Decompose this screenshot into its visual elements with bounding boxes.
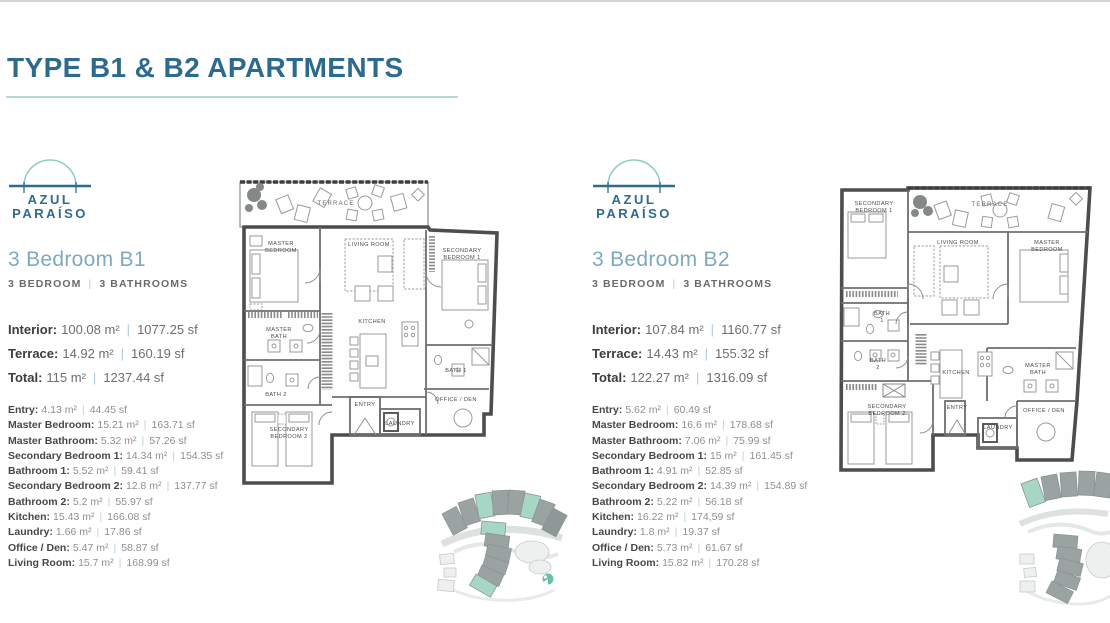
separator: | bbox=[751, 480, 764, 492]
summary-label: Interior: bbox=[592, 322, 641, 337]
plan-label-master-bedroom-2: BEDROOM bbox=[1031, 247, 1063, 253]
summary-row: Total:115 m²|1237.44 sf bbox=[8, 370, 198, 385]
room-detail-list: Entry:5.62 m²|60.49 sf Master Bedroom:16… bbox=[592, 403, 807, 571]
page-title: TYPE B1 & B2 APARTMENTS bbox=[7, 52, 404, 84]
plan-label-entry: ENTRY bbox=[355, 402, 376, 408]
room-label: Entry: bbox=[8, 404, 38, 416]
room-detail-row: Master Bedroom:15.21 m²|163.71 sf bbox=[8, 418, 223, 433]
room-label: Bathroom 2: bbox=[8, 496, 70, 508]
building-stack bbox=[1046, 534, 1083, 603]
separator: | bbox=[114, 557, 127, 569]
room-sf: 170.28 sf bbox=[716, 557, 759, 569]
room-m2: 15.7 m² bbox=[78, 557, 114, 569]
room-label: Bathroom 1: bbox=[8, 465, 70, 477]
page-top-border bbox=[0, 0, 1110, 2]
bedrooms-label: 3 BEDROOM bbox=[592, 278, 666, 290]
room-m2: 15 m² bbox=[710, 450, 737, 462]
room-label: Office / Den: bbox=[592, 542, 654, 554]
plan-label-bath2: BATH 2 bbox=[265, 392, 287, 398]
room-detail-row: Master Bedroom:16.6 m²|178.68 sf bbox=[592, 418, 807, 433]
room-sf: 163.71 sf bbox=[152, 419, 195, 431]
sunrise-arc-icon bbox=[9, 160, 91, 193]
unit-subtitle: 3 BEDROOM|3 BATHROOMS bbox=[8, 278, 188, 290]
room-detail-row: Entry:5.62 m²|60.49 sf bbox=[592, 403, 807, 418]
plan-label-master-bath-2: BATH bbox=[1030, 370, 1046, 376]
plan-label-secondary-bedroom1-1: SECONDARY bbox=[855, 201, 894, 207]
room-m2: 14.39 m² bbox=[710, 480, 751, 492]
plan-label-kitchen: KITCHEN bbox=[942, 370, 969, 376]
separator: | bbox=[720, 435, 733, 447]
site-location-map bbox=[436, 466, 568, 606]
summary-label: Total: bbox=[592, 370, 626, 385]
room-label: Master Bathroom: bbox=[592, 435, 682, 447]
plan-label-entry: ENTRY bbox=[947, 405, 968, 411]
room-m2: 5.47 m² bbox=[73, 542, 109, 554]
separator: | bbox=[77, 404, 90, 416]
room-label: Office / Den: bbox=[8, 542, 70, 554]
title-underline bbox=[6, 96, 458, 98]
summary-row: Interior:100.08 m²|1077.25 sf bbox=[8, 322, 198, 337]
room-sf: 17.86 sf bbox=[104, 526, 141, 538]
room-m2: 14.34 m² bbox=[126, 450, 167, 462]
room-sf: 57.26 sf bbox=[149, 435, 186, 447]
site-location-map bbox=[1018, 468, 1110, 620]
separator: | bbox=[86, 370, 103, 385]
room-detail-row: Master Bathroom:5.32 m²|57.26 sf bbox=[8, 434, 223, 449]
room-m2: 4.91 m² bbox=[657, 465, 693, 477]
plan-label-kitchen: KITCHEN bbox=[358, 319, 385, 325]
room-label: Laundry: bbox=[8, 526, 53, 538]
brand-logo: AZUL PARAÍSO bbox=[8, 150, 92, 220]
room-label: Secondary Bedroom 1: bbox=[592, 450, 707, 462]
room-label: Bathroom 2: bbox=[592, 496, 654, 508]
room-m2: 5.73 m² bbox=[657, 542, 693, 554]
plan-label-bath2-1: BATH bbox=[870, 358, 886, 364]
room-detail-row: Laundry:1.8 m²|19.37 sf bbox=[592, 525, 807, 540]
separator: | bbox=[92, 526, 105, 538]
room-sf: 75.99 sf bbox=[733, 435, 770, 447]
brand-name-line2: PARAÍSO bbox=[12, 206, 88, 220]
plan-label-master-bath-2: BATH bbox=[271, 334, 287, 340]
room-detail-row: Living Room:15.82 m²|170.28 sf bbox=[592, 556, 807, 571]
room-sf: 61.67 sf bbox=[705, 542, 742, 554]
room-detail-row: Secondary Bedroom 2:12.8 m²|137.77 sf bbox=[8, 479, 223, 494]
separator: | bbox=[717, 419, 730, 431]
room-detail-row: Living Room:15.7 m²|168.99 sf bbox=[8, 556, 223, 571]
summary-label: Terrace: bbox=[8, 346, 58, 361]
room-detail-row: Office / Den:5.73 m²|61.67 sf bbox=[592, 541, 807, 556]
summary-m2: 107.84 m² bbox=[645, 322, 704, 337]
summary-sf: 160.19 sf bbox=[131, 346, 185, 361]
room-m2: 16.6 m² bbox=[681, 419, 717, 431]
plan-label-secondary-bedroom1-2: BEDROOM 1 bbox=[443, 255, 480, 261]
separator: | bbox=[94, 511, 107, 523]
separator: | bbox=[704, 322, 721, 337]
separator: | bbox=[692, 465, 705, 477]
room-sf: 154.35 sf bbox=[180, 450, 223, 462]
room-sf: 137.77 sf bbox=[174, 480, 217, 492]
room-label: Master Bathroom: bbox=[8, 435, 98, 447]
brand-name-line1: AZUL bbox=[612, 192, 657, 207]
separator: | bbox=[108, 542, 121, 554]
summary-m2: 14.92 m² bbox=[62, 346, 113, 361]
summary-m2: 115 m² bbox=[46, 370, 86, 385]
unit-subtitle: 3 BEDROOM|3 BATHROOMS bbox=[592, 278, 772, 290]
separator: | bbox=[698, 346, 715, 361]
room-label: Kitchen: bbox=[8, 511, 50, 523]
plan-label-master-bedroom-2: BEDROOM bbox=[265, 248, 297, 254]
plan-label-bath2-2: 2 bbox=[876, 365, 880, 371]
separator: | bbox=[689, 370, 706, 385]
summary-m2: 122.27 m² bbox=[630, 370, 689, 385]
room-detail-row: Laundry:1.66 m²|17.86 sf bbox=[8, 525, 223, 540]
separator: | bbox=[670, 526, 683, 538]
bathrooms-label: 3 BATHROOMS bbox=[683, 278, 772, 290]
room-sf: 59.41 sf bbox=[121, 465, 158, 477]
plan-label-secondary-bedroom2-1: SECONDARY bbox=[270, 427, 309, 433]
separator: | bbox=[692, 542, 705, 554]
room-label: Living Room: bbox=[592, 557, 659, 569]
room-detail-row: Kitchen:15.43 m²|166.08 sf bbox=[8, 510, 223, 525]
separator: | bbox=[108, 465, 121, 477]
bathrooms-label: 3 BATHROOMS bbox=[99, 278, 188, 290]
plan-label-bath1-1: BATH bbox=[874, 311, 890, 317]
terrace-room: TERRACE bbox=[240, 182, 428, 227]
summary-m2: 14.43 m² bbox=[646, 346, 697, 361]
room-sf: 55.97 sf bbox=[115, 496, 152, 508]
room-m2: 5.62 m² bbox=[625, 404, 661, 416]
sunrise-arc-icon bbox=[593, 160, 675, 193]
plan-label-master-bedroom-1: MASTER bbox=[1034, 240, 1060, 246]
summary-sf: 1077.25 sf bbox=[137, 322, 198, 337]
room-m2: 4.13 m² bbox=[41, 404, 77, 416]
room-sf: 166.08 sf bbox=[107, 511, 150, 523]
separator: | bbox=[120, 322, 137, 337]
separator: | bbox=[167, 450, 180, 462]
room-m2: 5.22 m² bbox=[657, 496, 693, 508]
summary-list: Interior:107.84 m²|1160.77 sf Terrace:14… bbox=[592, 322, 781, 394]
plan-label-terrace: TERRACE bbox=[971, 202, 1008, 208]
room-sf: 52.85 sf bbox=[705, 465, 742, 477]
room-detail-row: Office / Den:5.47 m²|58.87 sf bbox=[8, 541, 223, 556]
separator: | bbox=[139, 419, 152, 431]
summary-label: Terrace: bbox=[592, 346, 642, 361]
summary-list: Interior:100.08 m²|1077.25 sf Terrace:14… bbox=[8, 322, 198, 394]
brand-logo: AZUL PARAÍSO bbox=[592, 150, 676, 220]
plan-label-bath1-2: 1 bbox=[880, 318, 884, 324]
plan-label-terrace: TERRACE bbox=[317, 201, 354, 207]
separator: | bbox=[103, 496, 116, 508]
plan-label-secondary-bedroom2-2: BEDROOM 2 bbox=[270, 434, 307, 440]
room-sf: 154.89 sf bbox=[764, 480, 807, 492]
room-m2: 7.06 m² bbox=[685, 435, 721, 447]
plan-label-secondary-bedroom2-1: SECONDARY bbox=[868, 404, 907, 410]
room-sf: 161.45 sf bbox=[750, 450, 793, 462]
room-m2: 1.8 m² bbox=[640, 526, 670, 538]
room-sf: 44.45 sf bbox=[90, 404, 127, 416]
summary-label: Interior: bbox=[8, 322, 57, 337]
room-detail-row: Bathroom 1:5.52 m²|59.41 sf bbox=[8, 464, 223, 479]
room-detail-row: Bathroom 1:4.91 m²|52.85 sf bbox=[592, 464, 807, 479]
room-detail-row: Secondary Bedroom 1:15 m²|161.45 sf bbox=[592, 449, 807, 464]
summary-row: Terrace:14.43 m²|155.32 sf bbox=[592, 346, 781, 361]
room-m2: 5.52 m² bbox=[73, 465, 109, 477]
summary-sf: 1237.44 sf bbox=[103, 370, 164, 385]
plan-label-master-bath-1: MASTER bbox=[1025, 363, 1051, 369]
plan-label-office-den: OFFICE / DEN bbox=[435, 397, 477, 403]
summary-sf: 155.32 sf bbox=[715, 346, 769, 361]
compass-dot-icon bbox=[543, 574, 554, 585]
room-sf: 19.37 sf bbox=[682, 526, 719, 538]
separator: | bbox=[704, 557, 717, 569]
room-label: Kitchen: bbox=[592, 511, 634, 523]
separator: | bbox=[678, 511, 691, 523]
room-label: Entry: bbox=[592, 404, 622, 416]
separator: | bbox=[136, 435, 149, 447]
room-m2: 15.21 m² bbox=[97, 419, 138, 431]
room-label: Living Room: bbox=[8, 557, 75, 569]
unit-heading: 3 Bedroom B2 bbox=[592, 248, 730, 272]
separator: | bbox=[162, 480, 175, 492]
summary-row: Interior:107.84 m²|1160.77 sf bbox=[592, 322, 781, 337]
separator: | bbox=[661, 404, 674, 416]
plan-label-master-bath-1: MASTER bbox=[266, 327, 292, 333]
room-label: Secondary Bedroom 1: bbox=[8, 450, 123, 462]
plan-label-laundry: LAUNDRY bbox=[983, 425, 1012, 431]
room-m2: 12.8 m² bbox=[126, 480, 162, 492]
floor-plan-b1: TERRACE bbox=[232, 172, 544, 512]
room-detail-row: Entry:4.13 m²|44.45 sf bbox=[8, 403, 223, 418]
room-m2: 16.22 m² bbox=[637, 511, 678, 523]
building-arc bbox=[1021, 471, 1110, 507]
summary-row: Terrace:14.92 m²|160.19 sf bbox=[8, 346, 198, 361]
room-sf: 56.18 sf bbox=[705, 496, 742, 508]
room-sf: 168.99 sf bbox=[126, 557, 169, 569]
room-detail-list: Entry:4.13 m²|44.45 sf Master Bedroom:15… bbox=[8, 403, 223, 571]
room-sf: 58.87 sf bbox=[121, 542, 158, 554]
plan-label-master-bedroom-1: MASTER bbox=[268, 241, 294, 247]
plan-label-living-room: LIVING ROOM bbox=[937, 240, 979, 246]
room-label: Laundry: bbox=[592, 526, 637, 538]
summary-sf: 1316.09 sf bbox=[706, 370, 767, 385]
room-detail-row: Bathroom 2:5.22 m²|56.18 sf bbox=[592, 495, 807, 510]
separator: | bbox=[114, 346, 131, 361]
room-m2: 5.32 m² bbox=[101, 435, 137, 447]
room-detail-row: Kitchen:16.22 m²|174,59 sf bbox=[592, 510, 807, 525]
room-detail-row: Master Bathroom:7.06 m²|75.99 sf bbox=[592, 434, 807, 449]
room-detail-row: Secondary Bedroom 2:14.39 m²|154.89 sf bbox=[592, 479, 807, 494]
room-m2: 5.2 m² bbox=[73, 496, 103, 508]
plan-label-laundry: LAUNDRY bbox=[385, 421, 414, 427]
room-label: Master Bedroom: bbox=[592, 419, 678, 431]
brand-name-line1: AZUL bbox=[28, 192, 73, 207]
separator: | bbox=[82, 278, 100, 290]
separator: | bbox=[666, 278, 684, 290]
plan-label-secondary-bedroom1-1: SECONDARY bbox=[443, 248, 482, 254]
room-m2: 15.82 m² bbox=[662, 557, 703, 569]
separator: | bbox=[737, 450, 750, 462]
summary-label: Total: bbox=[8, 370, 42, 385]
room-detail-row: Secondary Bedroom 1:14.34 m²|154.35 sf bbox=[8, 449, 223, 464]
room-sf: 60.49 sf bbox=[674, 404, 711, 416]
brand-name-line2: PARAÍSO bbox=[596, 206, 672, 220]
room-label: Secondary Bedroom 2: bbox=[592, 480, 707, 492]
room-sf: 174,59 sf bbox=[691, 511, 734, 523]
room-m2: 15.43 m² bbox=[53, 511, 94, 523]
plan-label-office-den: OFFICE / DEN bbox=[1023, 408, 1065, 414]
room-label: Master Bedroom: bbox=[8, 419, 94, 431]
room-label: Secondary Bedroom 2: bbox=[8, 480, 123, 492]
summary-sf: 1160.77 sf bbox=[721, 322, 781, 337]
summary-row: Total:122.27 m²|1316.09 sf bbox=[592, 370, 781, 385]
unit-heading: 3 Bedroom B1 bbox=[8, 248, 146, 272]
summary-m2: 100.08 m² bbox=[61, 322, 120, 337]
plan-label-secondary-bedroom1-2: BEDROOM 1 bbox=[855, 208, 892, 214]
plan-label-bath1: BATH 1 bbox=[445, 368, 467, 374]
room-label: Bathroom 1: bbox=[592, 465, 654, 477]
room-sf: 178.68 sf bbox=[730, 419, 773, 431]
separator: | bbox=[692, 496, 705, 508]
room-detail-row: Bathroom 2:5.2 m²|55.97 sf bbox=[8, 495, 223, 510]
bedrooms-label: 3 BEDROOM bbox=[8, 278, 82, 290]
room-m2: 1.66 m² bbox=[56, 526, 92, 538]
plan-label-living-room: LIVING ROOM bbox=[348, 242, 390, 248]
plan-label-secondary-bedroom2-2: BEDROOM 2 bbox=[868, 411, 905, 417]
